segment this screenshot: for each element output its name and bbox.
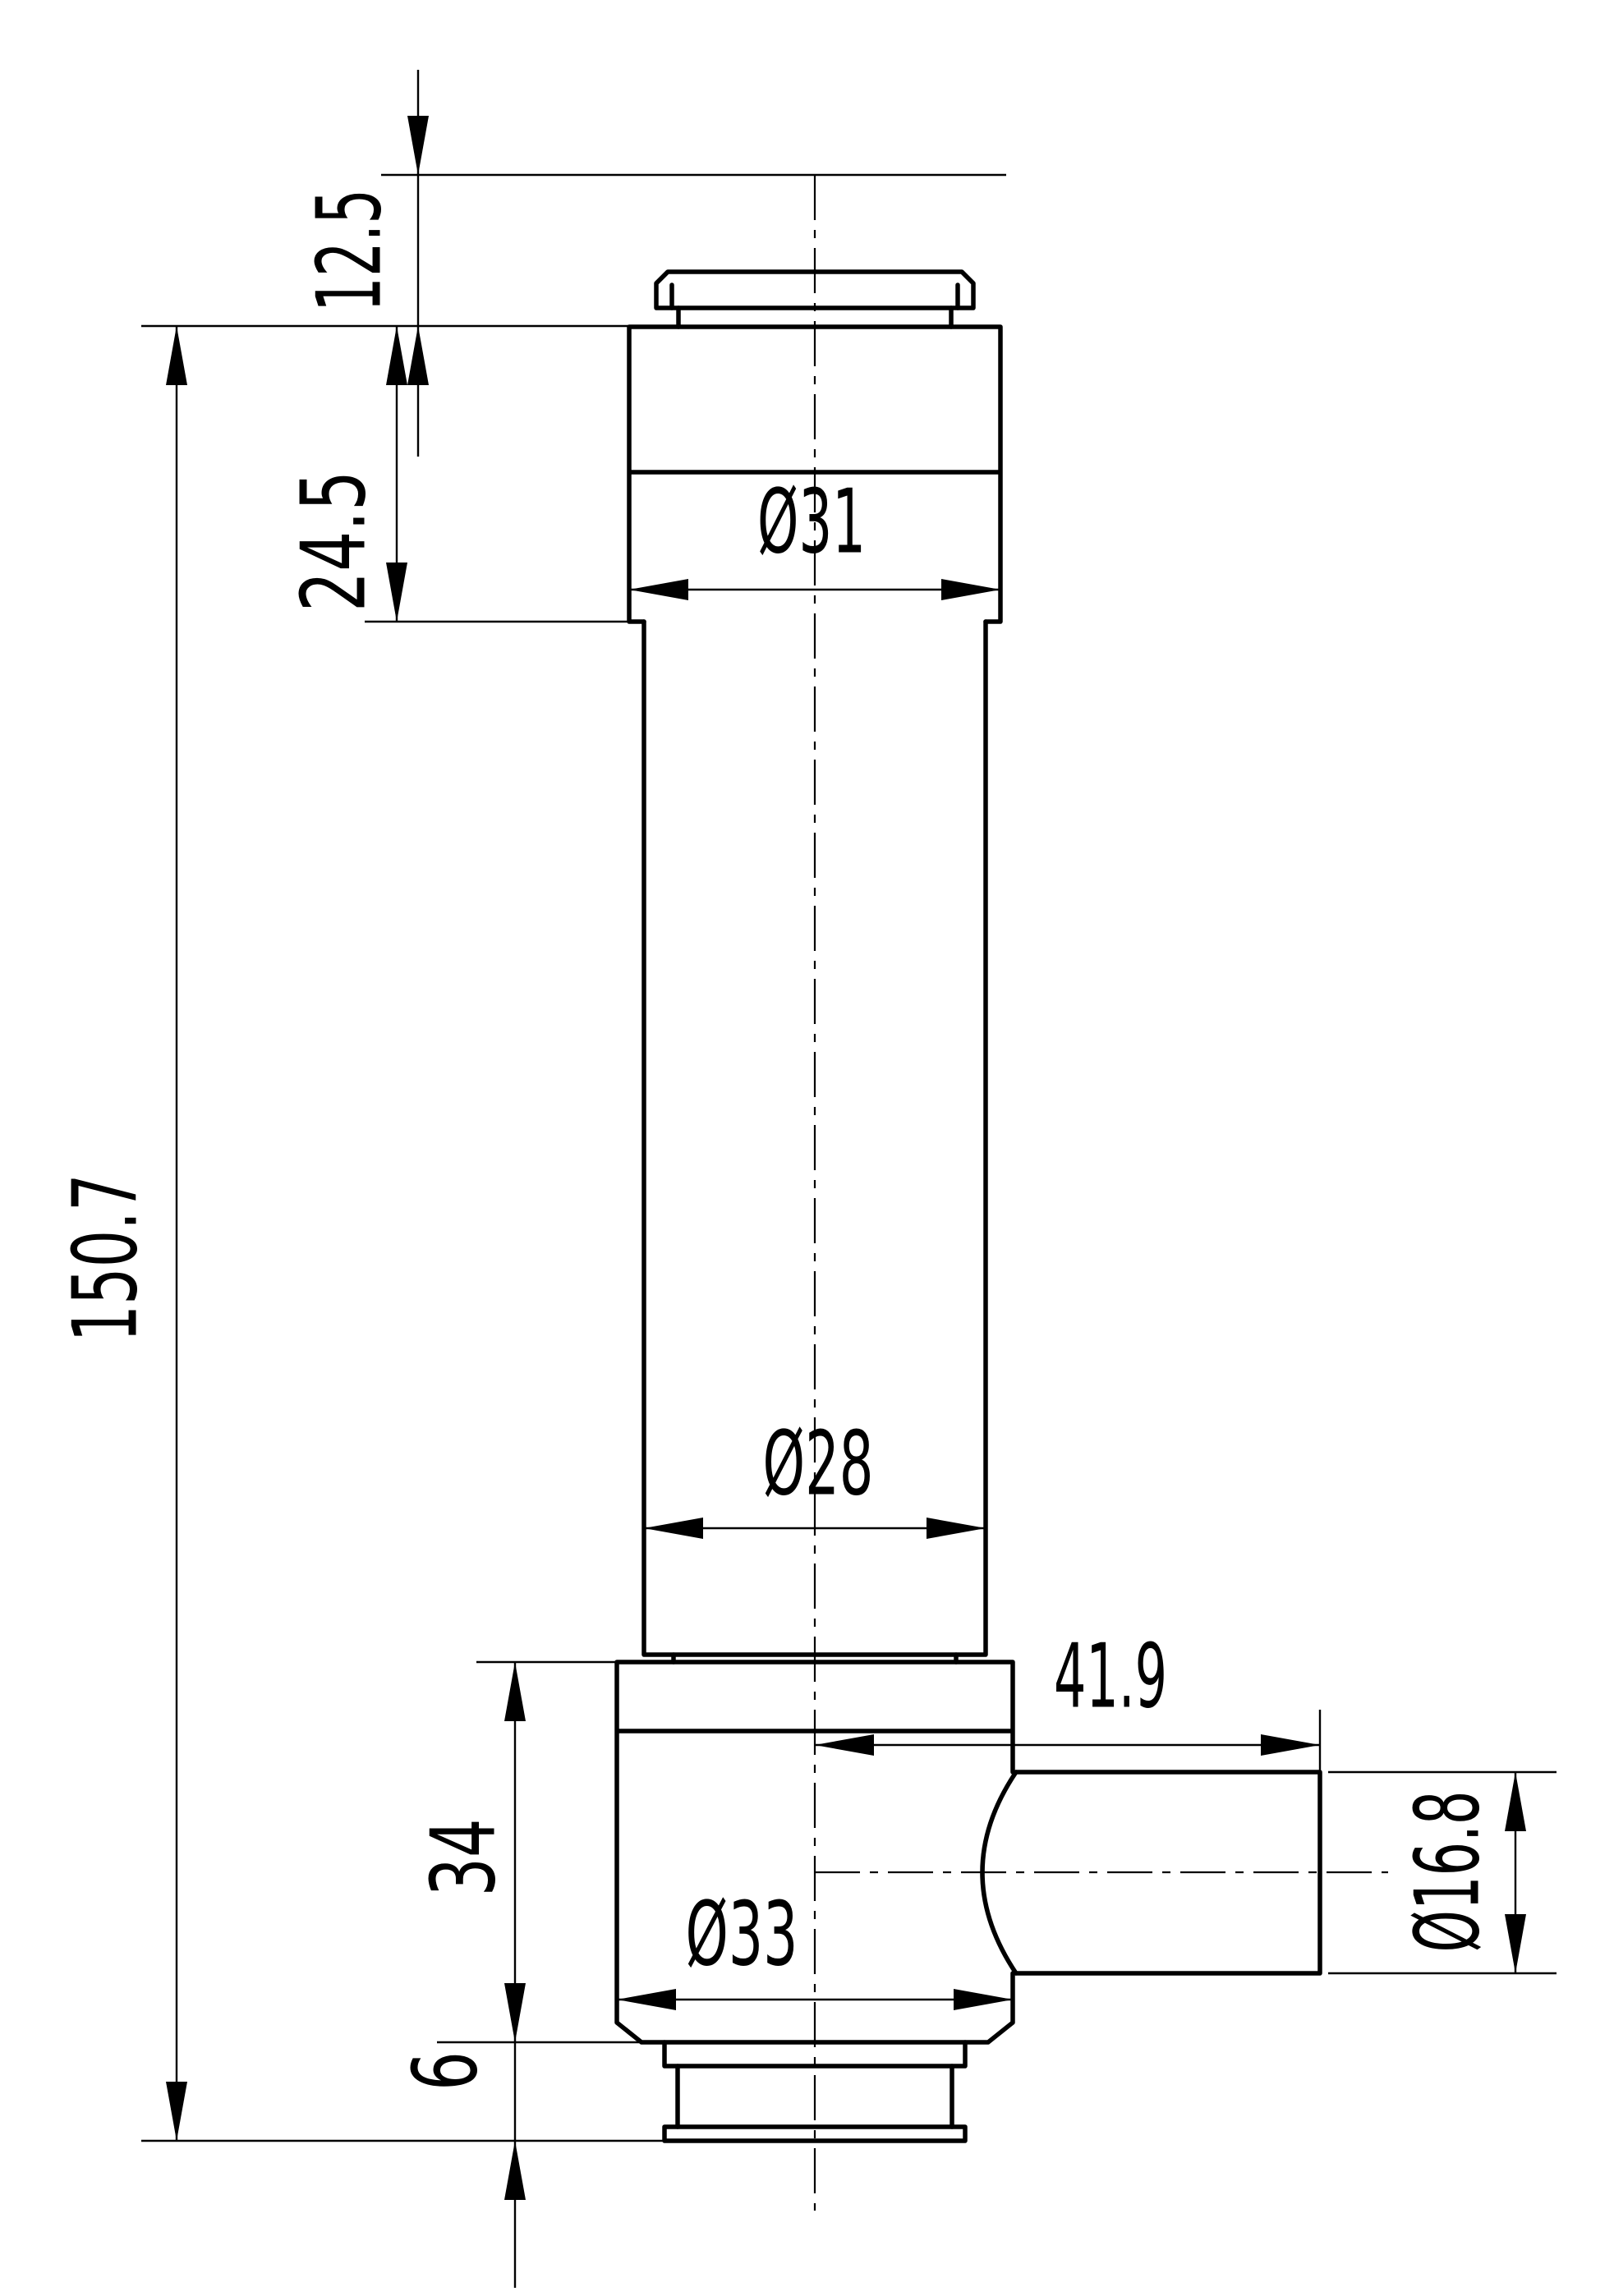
dim-overall-height-label: 150.7 xyxy=(55,1174,158,1343)
arrow-port-dia-bottom xyxy=(1505,1914,1526,1973)
arrow-upper-block-top xyxy=(386,326,407,385)
arrow-d28-right xyxy=(927,1518,986,1539)
drawing-sheet: 12.5 24.5 150.7 Ø31 Ø28 41.9 34 Ø33 6 Ø1… xyxy=(0,0,1614,2296)
arrow-port-dia-top xyxy=(1505,1772,1526,1831)
arrow-d33-right xyxy=(954,1989,1013,2010)
arrow-port-length-right xyxy=(1261,1734,1320,1756)
dim-cap-height-label: 12.5 xyxy=(299,189,402,312)
arrow-d33-left xyxy=(617,1989,676,2010)
arrow-d31-right xyxy=(941,579,1000,600)
dim-flange-height-label: 6 xyxy=(395,2051,498,2091)
engineering-drawing: 12.5 24.5 150.7 Ø31 Ø28 41.9 34 Ø33 6 Ø1… xyxy=(0,0,1614,2296)
arrow-d28-left xyxy=(644,1518,703,1539)
arrow-d31-left xyxy=(629,579,688,600)
dim-lower-block-height-label: 34 xyxy=(413,1819,516,1897)
arrow-upper-block-bottom xyxy=(386,563,407,622)
dim-port-length-label: 41.9 xyxy=(1054,1626,1167,1729)
dimension-labels: 12.5 24.5 150.7 Ø31 Ø28 41.9 34 Ø33 6 Ø1… xyxy=(55,189,1500,2091)
arrow-overall-bottom xyxy=(166,2082,187,2141)
arrow-cap-bottom xyxy=(407,326,429,385)
arrow-flange-bottom xyxy=(504,2141,526,2200)
arrow-port-length-left xyxy=(815,1734,874,1756)
dim-upper-block-diameter-label: Ø31 xyxy=(757,471,866,574)
dim-upper-block-height-label: 24.5 xyxy=(283,471,386,612)
dim-body-diameter-label: Ø28 xyxy=(763,1413,874,1516)
centerlines xyxy=(815,175,1388,2211)
dim-lower-block-diameter-label: Ø33 xyxy=(686,1884,798,1986)
part-outline xyxy=(617,272,1320,2141)
arrow-lower-block-top xyxy=(504,1662,526,1721)
arrow-lower-block-bottom xyxy=(504,1983,526,2042)
dim-port-diameter-label: Ø16.8 xyxy=(1397,1791,1500,1953)
arrow-overall-top xyxy=(166,326,187,385)
dimension-lines xyxy=(141,70,1557,2288)
arrow-cap-top xyxy=(407,116,429,175)
